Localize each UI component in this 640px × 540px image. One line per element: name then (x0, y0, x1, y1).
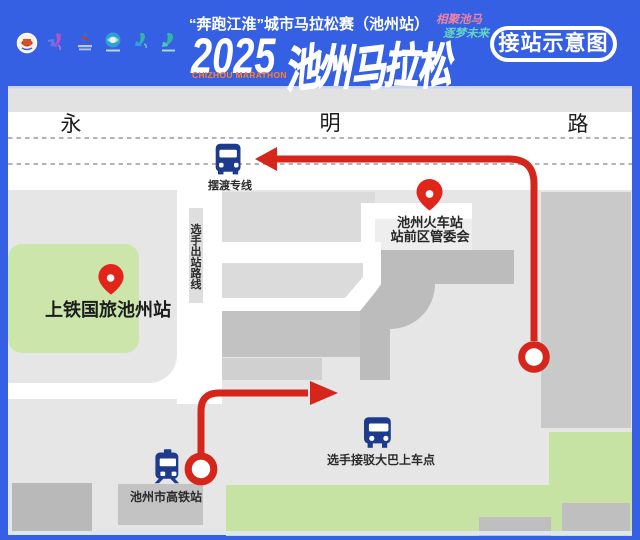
svg-text:选: 选 (191, 222, 202, 236)
svg-text:站前区管委会: 站前区管委会 (390, 228, 470, 244)
svg-text:路: 路 (568, 113, 589, 136)
svg-text:池州市高铁站: 池州市高铁站 (130, 489, 202, 504)
svg-text:选手接驳大巴上车点: 选手接驳大巴上车点 (327, 452, 435, 467)
svg-text:永: 永 (61, 113, 82, 136)
svg-text:上铁国旅池州站: 上铁国旅池州站 (45, 299, 171, 320)
svg-text:池州火车站: 池州火车站 (397, 214, 463, 230)
svg-text:出: 出 (191, 244, 202, 258)
svg-text:明: 明 (320, 112, 341, 135)
svg-text:线: 线 (191, 277, 202, 291)
svg-text:站: 站 (191, 255, 202, 269)
svg-text:路: 路 (191, 266, 203, 280)
svg-text:手: 手 (191, 233, 202, 247)
svg-text:摆渡专线: 摆渡专线 (208, 178, 252, 192)
